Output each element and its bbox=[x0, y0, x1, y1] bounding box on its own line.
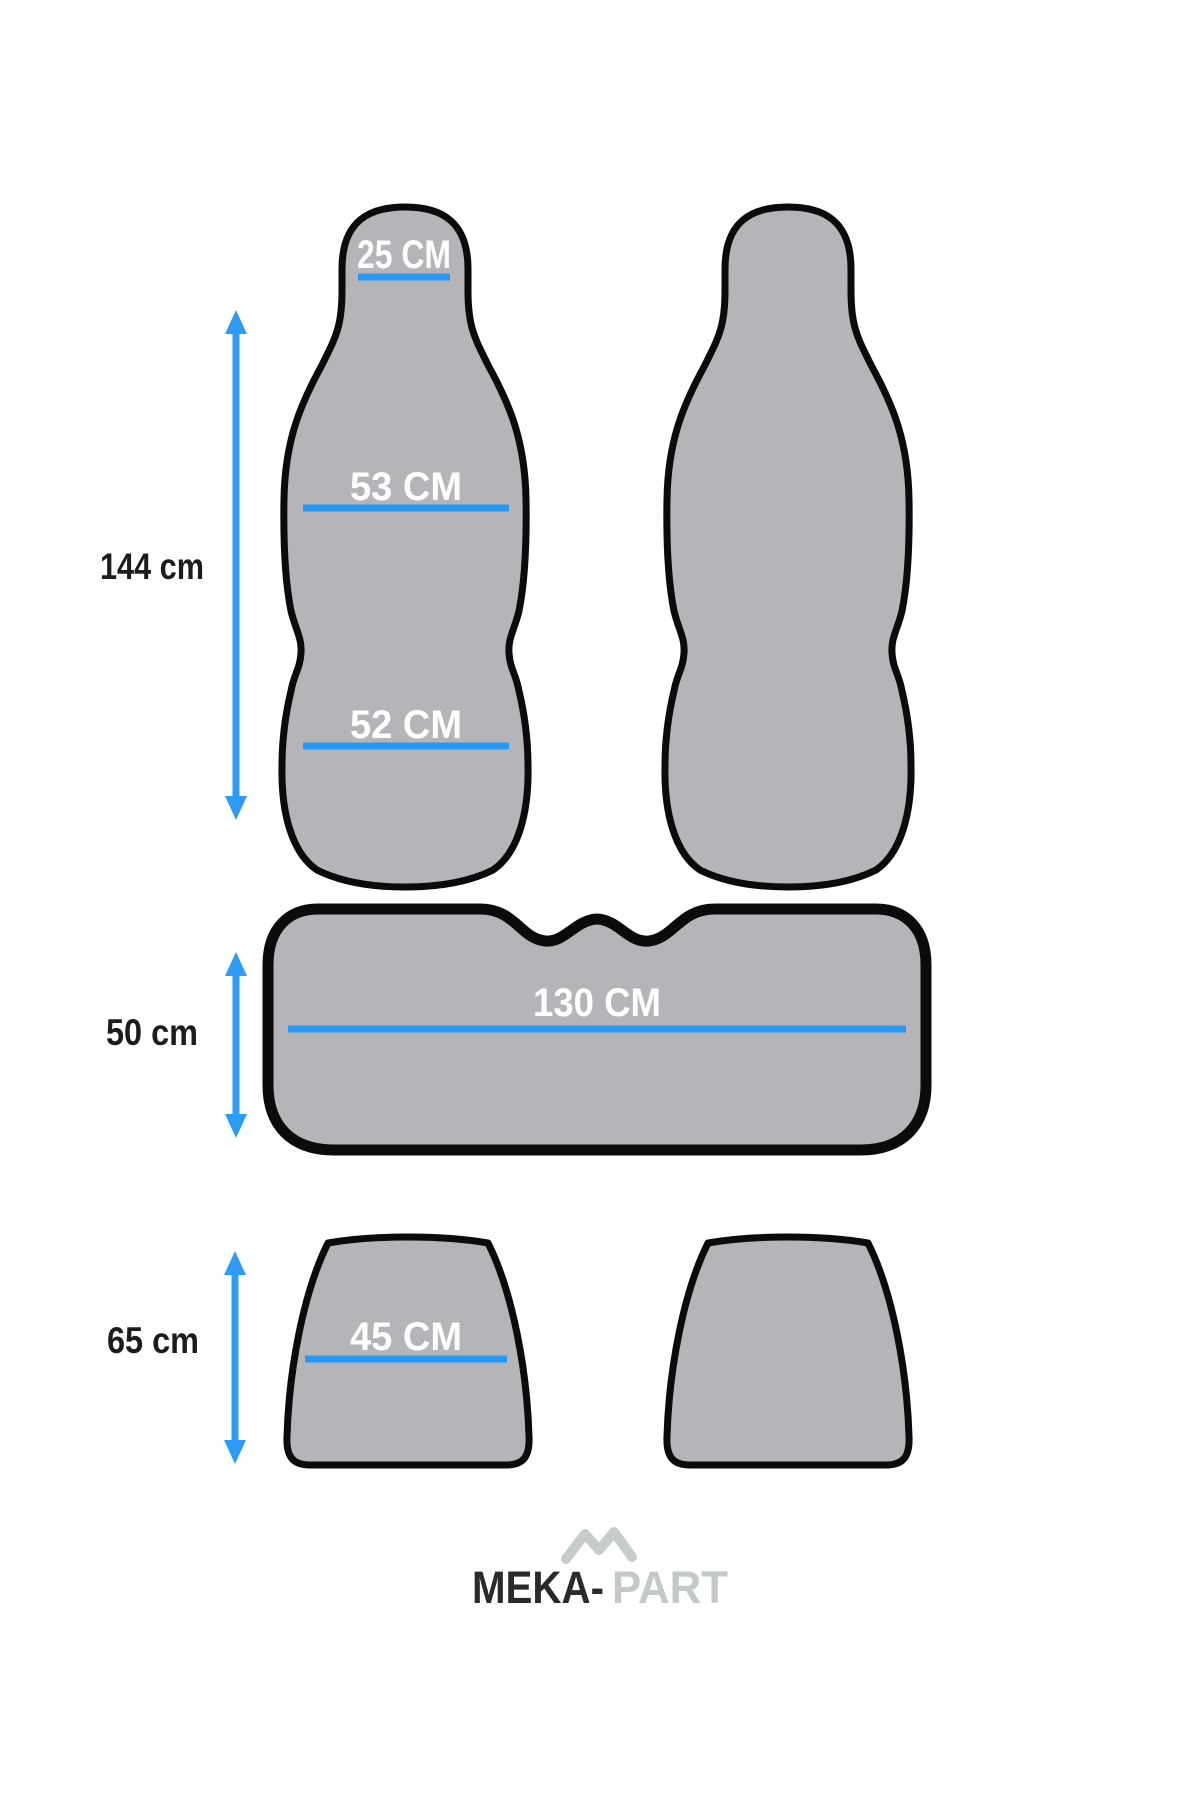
front-height-label: 144 cm bbox=[100, 546, 204, 587]
diagram-canvas: 25 CM 53 CM 52 CM 130 CM 45 CM 144 cm 50… bbox=[0, 0, 1200, 1800]
rear-cushion-right-shape bbox=[667, 1237, 909, 1465]
cushion-height-arrow bbox=[224, 1251, 246, 1464]
front-seat-cover-left bbox=[282, 207, 528, 887]
bench-height-label: 50 cm bbox=[106, 1012, 198, 1053]
backrest-lower-width-label: 52 CM bbox=[350, 703, 462, 747]
front-seat-cover-right bbox=[665, 207, 911, 887]
logo-text-light: PART bbox=[612, 1562, 728, 1613]
front-seat-right-shape bbox=[665, 207, 911, 887]
rear-cushion-right bbox=[667, 1237, 909, 1465]
cushion-height-label: 65 cm bbox=[107, 1320, 199, 1361]
front-seat-left-shape bbox=[282, 207, 528, 887]
headrest-width-label: 25 CM bbox=[357, 233, 451, 277]
bench-height-arrow bbox=[225, 952, 247, 1138]
front-height-arrow bbox=[225, 310, 247, 820]
mountain-m-icon bbox=[566, 1532, 632, 1559]
logo-text-dark: MEKA- bbox=[472, 1562, 604, 1613]
backrest-upper-width-label: 53 CM bbox=[350, 465, 462, 509]
bench-width-label: 130 CM bbox=[533, 981, 661, 1025]
brand-logo: MEKA- PART bbox=[472, 1532, 728, 1613]
cushion-width-label: 45 CM bbox=[350, 1315, 462, 1359]
seat-cover-dimension-diagram: 25 CM 53 CM 52 CM 130 CM 45 CM 144 cm 50… bbox=[0, 0, 1200, 1800]
